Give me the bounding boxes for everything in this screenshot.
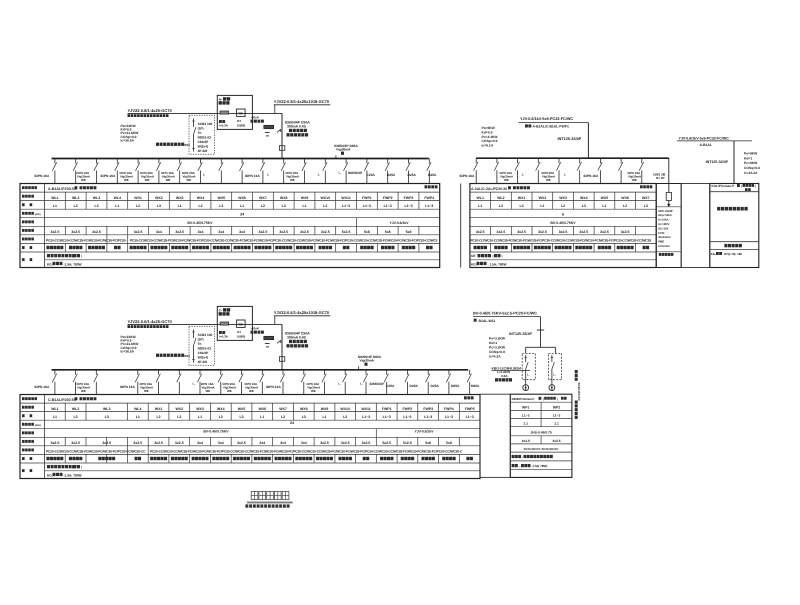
svg-text:WX6: WX6 — [621, 196, 629, 200]
svg-text:Ic=36.5A: Ic=36.5A — [121, 138, 135, 142]
svg-text:3x4: 3x4 — [259, 441, 265, 445]
svg-text:BV-0.45/0.75KV: BV-0.45/0.75KV — [550, 221, 576, 225]
svg-text:C-: C- — [219, 309, 223, 313]
svg-text:1,: 1, — [564, 173, 567, 177]
svg-text:WE: WE — [144, 389, 149, 393]
svg-text:FWP5: FWP5 — [465, 407, 475, 411]
svg-text:INT125-32/4P: INT125-32/4P — [509, 332, 532, 336]
svg-text:L2: L2 — [343, 415, 347, 419]
svg-text::1.5A; 780W: :1.5A; 780W — [64, 262, 82, 266]
svg-text:L1: L1 — [198, 415, 202, 419]
svg-text:3x2.5: 3x2.5 — [102, 441, 111, 445]
svg-text:BV-0.45/0.75KV: BV-0.45/0.75KV — [203, 430, 229, 434]
svg-text:WX8: WX8 — [280, 196, 288, 200]
svg-text:L1~3: L1~3 — [424, 415, 432, 419]
svg-text:WX1: WX1 — [155, 407, 163, 411]
svg-text:FYM:: FYM: — [658, 232, 665, 235]
svg-text:WE: WE — [81, 389, 86, 393]
svg-text:L1: L1 — [478, 204, 482, 208]
svg-text:L1~3: L1~3 — [425, 204, 433, 208]
svg-text:FWP4: FWP4 — [424, 196, 434, 200]
svg-text:A-: A- — [219, 98, 223, 102]
svg-text:L3: L3 — [239, 415, 243, 419]
svg-text:5x2.5: 5x2.5 — [403, 441, 412, 445]
svg-text:WL2: WL2 — [497, 196, 504, 200]
svg-text:L3: L3 — [644, 204, 648, 208]
svg-text:L2: L2 — [499, 204, 503, 208]
svg-text:15(60): 15(60) — [237, 334, 246, 338]
svg-text:WL1: WL1 — [477, 196, 484, 200]
svg-text:NT 4P: NT 4P — [656, 176, 665, 180]
svg-text:BV-0.45/0.75KV-5x2.5-PC20-FC/W: BV-0.45/0.75KV-5x2.5-PC20-FC/WC — [473, 311, 537, 316]
svg-text:L,: L, — [360, 382, 363, 386]
svg-text:3x2.5: 3x2.5 — [320, 441, 329, 445]
svg-text:3x2.5: 3x2.5 — [237, 441, 246, 445]
svg-text:5x2.5: 5x2.5 — [342, 230, 351, 234]
svg-text:D25A: D25A — [431, 384, 440, 388]
svg-text:L1: L1 — [136, 415, 140, 419]
svg-text:3x2.5: 3x2.5 — [51, 230, 60, 234]
svg-text:300mA 0.4S: 300mA 0.4S — [287, 125, 307, 129]
svg-text:): ) — [557, 397, 558, 401]
svg-text:WL1: WL1 — [51, 196, 58, 200]
svg-text:L3: L3 — [282, 204, 286, 208]
svg-text::1.5A; 780W: :1.5A; 780W — [64, 473, 82, 477]
svg-text:Kd=1: Kd=1 — [744, 156, 752, 160]
svg-text:L2: L2 — [281, 415, 285, 419]
svg-text:WX8: WX8 — [300, 407, 308, 411]
svg-text:0.01mm2: 0.01mm2 — [658, 245, 670, 248]
svg-text:WL2: WL2 — [72, 196, 79, 200]
svg-text:1,: 1, — [203, 173, 206, 177]
svg-text:Ic=36.5A: Ic=36.5A — [121, 349, 135, 353]
svg-text:L1: L1 — [53, 415, 57, 419]
svg-text:WP2: WP2 — [553, 405, 560, 409]
svg-text:15(60): 15(60) — [237, 123, 246, 127]
svg-text:Pe=5KW: Pe=5KW — [482, 126, 496, 130]
svg-text:L1: L1 — [53, 204, 57, 208]
svg-text:ID65N/3P: ID65N/3P — [348, 171, 363, 175]
svg-text:): ) — [81, 465, 82, 469]
svg-text:YJV-0.6/1kV-5x6-PC32-FC/WC: YJV-0.6/1kV-5x6-PC32-FC/WC — [679, 136, 730, 140]
svg-text:L2: L2 — [157, 415, 161, 419]
svg-text:3x2.5: 3x2.5 — [300, 230, 309, 234]
svg-text:YJV22-0.8/1-4x25-GC70: YJV22-0.8/1-4x25-GC70 — [128, 108, 173, 113]
svg-text:3x4: 3x4 — [197, 441, 203, 445]
svg-text:WX1: WX1 — [518, 196, 526, 200]
svg-text:YJV22-0.6/1-4x25x1018-GC70: YJV22-0.6/1-4x25x1018-GC70 — [274, 310, 330, 315]
svg-text:L3: L3 — [94, 204, 98, 208]
svg-text:FWP3: FWP3 — [404, 196, 414, 200]
svg-text:24: 24 — [240, 213, 244, 217]
svg-text:A-B1AL/PZ30-54: A-B1AL/PZ30-54 — [48, 187, 76, 191]
svg-text:L1~3: L1~3 — [522, 414, 530, 418]
svg-text:(: ( — [543, 397, 544, 401]
svg-text:L2: L2 — [219, 415, 223, 419]
svg-text:WX9: WX9 — [301, 196, 309, 200]
svg-text:D65A: D65A — [471, 384, 480, 388]
svg-text:L,: L, — [338, 382, 341, 386]
svg-text:COSφ=0.8: COSφ=0.8 — [489, 350, 505, 354]
svg-text:3x2.5: 3x2.5 — [497, 230, 506, 234]
svg-text:3x2.5: 3x2.5 — [133, 441, 142, 445]
svg-text:L2: L2 — [323, 204, 327, 208]
svg-text:L1~3: L1~3 — [553, 414, 561, 418]
svg-text:KG,: KG, — [711, 252, 716, 256]
svg-text:WX3: WX3 — [559, 196, 567, 200]
svg-text:24: 24 — [290, 421, 294, 425]
svg-text:KG,: KG, — [47, 262, 53, 266]
svg-text:1,: 1, — [267, 173, 270, 177]
svg-text:(1P): (1P) — [198, 337, 204, 341]
svg-text:L3: L3 — [74, 415, 78, 419]
svg-text:: 1.5A; 780W: : 1.5A; 780W — [488, 262, 507, 266]
svg-text:3.6A: 3.6A — [501, 374, 508, 378]
svg-text:IDPN 16A: IDPN 16A — [120, 385, 135, 389]
svg-text:PME: PME — [658, 241, 664, 244]
svg-text:INT125-32/4P: INT125-32/4P — [706, 160, 729, 164]
svg-text:IDPN 16A: IDPN 16A — [35, 385, 50, 389]
svg-text:SPD 1St/4P: SPD 1St/4P — [658, 210, 673, 213]
svg-text:IDPN 16A: IDPN 16A — [460, 174, 475, 178]
svg-text:C25A: C25A — [386, 384, 395, 388]
svg-text:1.1: 1.1 — [523, 422, 528, 426]
svg-text:5x6: 5x6 — [364, 230, 370, 234]
svg-text:YJV-0.6/1kV: YJV-0.6/1kV — [414, 430, 434, 434]
svg-text:(KW): (KW) — [35, 424, 41, 427]
svg-text:5x2.5: 5x2.5 — [382, 441, 391, 445]
svg-text::: : — [522, 455, 523, 459]
svg-text:3x4: 3x4 — [218, 230, 224, 234]
svg-text:D65A: D65A — [451, 384, 460, 388]
svg-text:L1~3: L1~3 — [404, 204, 412, 208]
svg-text:Vigi30mA: Vigi30mA — [336, 147, 351, 151]
svg-text:(1P): (1P) — [198, 126, 204, 130]
svg-text:WL3: WL3 — [93, 196, 100, 200]
svg-text:L1~3: L1~3 — [445, 415, 453, 419]
svg-text:FWP1: FWP1 — [362, 196, 372, 200]
svg-text:WE: WE — [166, 178, 171, 182]
svg-text:L2: L2 — [561, 204, 565, 208]
svg-text:WE: WE — [81, 178, 86, 182]
svg-text:L1: L1 — [240, 204, 244, 208]
svg-text:WL2: WL2 — [72, 407, 79, 411]
svg-text:IDPN 16A: IDPN 16A — [245, 174, 260, 178]
svg-text:BV-0.45/0.75KV: BV-0.45/0.75KV — [187, 221, 213, 225]
svg-text:E53: E53 — [185, 354, 191, 358]
svg-text:C63/4P: C63/4P — [198, 351, 210, 355]
svg-text:SC=10X: SC=10X — [658, 227, 668, 230]
svg-text:Uc=400V: Uc=400V — [658, 223, 669, 226]
svg-text:W(3x4): W(3x4) — [198, 355, 208, 359]
svg-text:WE: WE — [227, 389, 232, 393]
svg-text:3x2.5: 3x2.5 — [154, 441, 163, 445]
svg-text:WE: WE — [632, 178, 637, 182]
svg-text:3x2.5: 3x2.5 — [51, 441, 60, 445]
svg-text:L,: L, — [527, 374, 530, 377]
svg-text:D25A: D25A — [428, 173, 437, 177]
svg-text:WX7: WX7 — [279, 407, 287, 411]
svg-text:3x2.5: 3x2.5 — [71, 441, 80, 445]
svg-text:I=0.3A: I=0.3A — [219, 334, 229, 338]
svg-text:INT125-32/4P: INT125-32/4P — [558, 137, 582, 141]
svg-text:JHS-0.45/0.75: JHS-0.45/0.75 — [530, 430, 551, 434]
svg-text:FWP2: FWP2 — [383, 196, 393, 200]
svg-text:WE: WE — [311, 389, 316, 393]
svg-text::1.54( 78W): :1.54( 78W) — [532, 464, 548, 468]
svg-text:L,: L, — [553, 374, 556, 377]
svg-text:L1~3: L1~3 — [466, 415, 474, 419]
svg-text:L1: L1 — [602, 204, 606, 208]
svg-text:A-B1AL: A-B1AL — [700, 143, 712, 147]
svg-text:L1: L1 — [540, 204, 544, 208]
svg-text:YJV22-0.6/1-4x25-GC70: YJV22-0.6/1-4x25-GC70 — [128, 319, 173, 324]
svg-text:D25A: D25A — [408, 173, 417, 177]
svg-text:NDB1-63: NDB1-63 — [198, 346, 212, 350]
svg-text:3x4: 3x4 — [239, 230, 245, 234]
svg-text:(: ( — [72, 254, 73, 258]
svg-text:PC20-CC/WC20-CC/WC25-FC/WC20-F: PC20-CC/WC20-CC/WC25-FC/WC20-FC/WC25-FC/… — [471, 238, 652, 242]
svg-text:Wh: Wh — [238, 323, 243, 327]
svg-text:4P-2M: 4P-2M — [198, 149, 208, 153]
svg-text:L3: L3 — [302, 415, 306, 419]
svg-text:PC20-CC/WC20-CC/WC25-FC/WC20-F: PC20-CC/WC20-CC/WC25-FC/WC20-FC/WC25-FC/… — [46, 238, 126, 242]
svg-text:L1~3: L1~3 — [362, 415, 370, 419]
svg-text:YJV22-0.8/1-4x25x1018-GC70: YJV22-0.8/1-4x25x1018-GC70 — [274, 99, 330, 104]
svg-text:YJV-0.6/1kV: YJV-0.6/1kV — [389, 221, 409, 225]
svg-text:A-B1AL/C-B1AL-FWP1: A-B1AL/C-B1AL-FWP1 — [533, 124, 569, 128]
svg-text:L2: L2 — [198, 204, 202, 208]
svg-text:D25A: D25A — [387, 173, 396, 177]
svg-text:(: ( — [741, 184, 742, 188]
svg-text:WL1: WL1 — [51, 407, 58, 411]
svg-text:1.1: 1.1 — [554, 422, 559, 426]
svg-text:WX4: WX4 — [580, 196, 588, 200]
svg-text:3x2.5: 3x2.5 — [175, 230, 184, 234]
svg-text:WX5: WX5 — [601, 196, 609, 200]
svg-text:IDPN 16A: IDPN 16A — [101, 174, 116, 178]
svg-text:WX5: WX5 — [238, 407, 246, 411]
svg-text:L2: L2 — [261, 204, 265, 208]
svg-text:WX11: WX11 — [361, 407, 370, 411]
svg-text:WE: WE — [206, 389, 211, 393]
svg-text:IDPN 16A: IDPN 16A — [35, 174, 50, 178]
svg-text:3x2.5: 3x2.5 — [476, 230, 485, 234]
svg-text:PC20-CC/WC20-CC/WC25-FC/WC20-F: PC20-CC/WC20-CC/WC25-FC/WC20-FC/WC25-FC/… — [130, 238, 438, 242]
svg-text:(: ( — [493, 254, 494, 258]
svg-text:IDPN 16A: IDPN 16A — [266, 385, 281, 389]
svg-text:1,: 1, — [317, 173, 320, 177]
svg-text:WL4: WL4 — [114, 196, 121, 200]
svg-text:): ) — [502, 254, 503, 258]
svg-text:KG,: KG, — [471, 262, 477, 266]
svg-text:5x8: 5x8 — [385, 230, 391, 234]
svg-text:WE: WE — [504, 178, 509, 182]
svg-text:WX6: WX6 — [259, 407, 267, 411]
svg-text:Pe=8KW: Pe=8KW — [744, 152, 758, 156]
svg-text:WE: WE — [249, 389, 254, 393]
svg-text:WX3: WX3 — [196, 407, 204, 411]
svg-text:3x2.5: 3x2.5 — [538, 230, 547, 234]
svg-text:3x2.5: 3x2.5 — [559, 230, 568, 234]
svg-text:WX7: WX7 — [259, 196, 267, 200]
svg-text:WP1: WP1 — [522, 405, 529, 409]
svg-text:WX10: WX10 — [340, 407, 350, 411]
svg-text:NDB1-63: NDB1-63 — [198, 135, 212, 139]
svg-text:WE: WE — [145, 178, 150, 182]
svg-text:300mA 0.4S: 300mA 0.4S — [287, 336, 307, 340]
svg-text:4x2.5: 4x2.5 — [522, 439, 530, 443]
svg-text:Ic=15.2A: Ic=15.2A — [744, 171, 758, 175]
svg-text:DWB/Prisman-P: DWB/Prisman-P — [512, 397, 535, 401]
svg-text:Th: Th — [198, 131, 202, 135]
svg-text:): ) — [81, 254, 82, 258]
svg-text:L1~3: L1~3 — [363, 204, 371, 208]
svg-text:3x4: 3x4 — [156, 230, 162, 234]
svg-text:L1: L1 — [322, 415, 326, 419]
svg-text:40x4mm2: 40x4mm2 — [658, 236, 671, 239]
svg-text:3x4: 3x4 — [280, 441, 286, 445]
svg-text:3x2.5: 3x2.5 — [92, 230, 101, 234]
svg-text:A-2AL/C-2AL/PZ30-30: A-2AL/C-2AL/PZ30-30 — [471, 187, 507, 191]
svg-text:5x8: 5x8 — [446, 441, 452, 445]
svg-text:SCB2 100: SCB2 100 — [198, 333, 213, 337]
svg-text:Ic=8.1A: Ic=8.1A — [482, 144, 494, 148]
svg-text:KGL/Prisman-P: KGL/Prisman-P — [712, 184, 735, 188]
svg-text:FWP4: FWP4 — [444, 407, 454, 411]
svg-text:WX4: WX4 — [217, 407, 225, 411]
svg-text:C63/4P: C63/4P — [198, 140, 210, 144]
svg-text:3x2.5: 3x2.5 — [341, 441, 350, 445]
svg-text:FWP1: FWP1 — [382, 407, 392, 411]
svg-text:3x4: 3x4 — [198, 230, 204, 234]
svg-text:3x4: 3x4 — [218, 441, 224, 445]
svg-text:W(3x4): W(3x4) — [198, 144, 208, 148]
svg-text:D25A: D25A — [410, 384, 419, 388]
svg-text:-40x4: -40x4 — [251, 115, 259, 119]
svg-text:I=0.3A: I=0.3A — [219, 123, 229, 127]
svg-text:L3: L3 — [582, 204, 586, 208]
svg-text:WX2: WX2 — [176, 407, 184, 411]
svg-text:L,: L, — [339, 171, 342, 175]
svg-text:COSφ=0.9: COSφ=0.9 — [482, 139, 498, 143]
svg-text:Pc=4.4KW: Pc=4.4KW — [482, 135, 499, 139]
svg-text:FWP2: FWP2 — [403, 407, 413, 411]
svg-text:6/F: 6/F — [471, 254, 476, 258]
svg-text:4P-2M: 4P-2M — [198, 360, 208, 364]
svg-text:3x2.5: 3x2.5 — [621, 230, 630, 234]
svg-text:L2: L2 — [623, 204, 627, 208]
svg-text:Pc=3.2KW: Pc=3.2KW — [489, 346, 506, 350]
svg-text:6: 6 — [562, 213, 564, 217]
svg-text:YJV-0.6/1kV-5x6-PC32-FC/WC: YJV-0.6/1kV-5x6-PC32-FC/WC — [520, 117, 573, 121]
svg-text:): ) — [755, 184, 756, 188]
svg-text:L3: L3 — [219, 204, 223, 208]
svg-text:Pe=3.2KW: Pe=3.2KW — [489, 337, 506, 341]
svg-text:Pc=8KW: Pc=8KW — [744, 161, 758, 165]
svg-text:Iimp=15kA: Iimp=15kA — [658, 214, 672, 217]
svg-text::8T(1.74): 18h: :8T(1.74): 18h — [724, 252, 743, 256]
svg-text:WX1: WX1 — [134, 196, 142, 200]
svg-text:3x2.5: 3x2.5 — [134, 230, 143, 234]
svg-text:WX9: WX9 — [321, 407, 329, 411]
svg-text:3x2.5: 3x2.5 — [600, 230, 609, 234]
svg-text:3x2.5: 3x2.5 — [321, 230, 330, 234]
svg-text:SC20-WC/FC: SC20-WC/FC — [577, 383, 581, 402]
svg-text:COSφ=0.6: COSφ=0.6 — [744, 166, 760, 170]
svg-text:WE: WE — [187, 178, 192, 182]
svg-text:5x6: 5x6 — [425, 441, 431, 445]
svg-text:L3: L3 — [177, 415, 181, 419]
svg-text:L1: L1 — [115, 204, 119, 208]
svg-text:3x2.5: 3x2.5 — [517, 230, 526, 234]
svg-text:Ic=10kA: Ic=10kA — [658, 219, 668, 222]
svg-text:WX7: WX7 — [642, 196, 650, 200]
svg-text:3x2.5: 3x2.5 — [579, 230, 588, 234]
svg-text:L3: L3 — [105, 415, 109, 419]
svg-text:C25A: C25A — [367, 173, 376, 177]
svg-text:(KW): (KW) — [35, 213, 41, 216]
svg-text:WX2: WX2 — [155, 196, 163, 200]
svg-text:IDPN 16A: IDPN 16A — [584, 174, 599, 178]
svg-text:L2: L2 — [136, 204, 140, 208]
svg-text:FWP3: FWP3 — [423, 407, 433, 411]
svg-text:4x2.5: 4x2.5 — [552, 439, 560, 443]
svg-text:L1: L1 — [260, 415, 264, 419]
svg-text:WX2: WX2 — [539, 196, 547, 200]
svg-text:WL4: WL4 — [134, 407, 141, 411]
svg-text:C-B1AL/P230-54: C-B1AL/P230-54 — [48, 398, 76, 402]
svg-text:3x2.5: 3x2.5 — [259, 230, 268, 234]
svg-text:L1: L1 — [178, 204, 182, 208]
svg-text:WX4: WX4 — [197, 196, 205, 200]
svg-text:E53: E53 — [185, 143, 191, 147]
svg-text:(: ( — [72, 465, 73, 469]
svg-text:L3: L3 — [520, 204, 524, 208]
svg-text:WL3: WL3 — [103, 407, 110, 411]
svg-text:WE: WE — [124, 178, 129, 182]
svg-text:WX6: WX6 — [238, 196, 246, 200]
svg-text:WX5: WX5 — [218, 196, 226, 200]
svg-text:-40x4: -40x4 — [251, 326, 259, 330]
svg-text:WX11: WX11 — [341, 196, 350, 200]
svg-text:WX3: WX3 — [176, 196, 184, 200]
svg-text:Kd=1: Kd=1 — [489, 341, 497, 345]
svg-text:Wh: Wh — [238, 112, 243, 116]
svg-text:Kd=0.9: Kd=0.9 — [482, 130, 493, 134]
svg-text:3x2.5: 3x2.5 — [71, 230, 80, 234]
svg-text:PC20-CC/WC20-CC/WC25-FC/WC20-F: PC20-CC/WC20-CC/WC25-FC/WC20-FC/WC25-FC/… — [150, 449, 463, 453]
svg-text:3x2.5: 3x2.5 — [279, 230, 288, 234]
svg-text:L1: L1 — [302, 204, 306, 208]
svg-text:L1~3: L1~3 — [383, 415, 391, 419]
svg-text:WE: WE — [546, 178, 551, 182]
svg-text:3x4: 3x4 — [301, 441, 307, 445]
svg-text:3x2.5: 3x2.5 — [362, 441, 371, 445]
svg-text:L1~3: L1~3 — [384, 204, 392, 208]
svg-text:L1~3: L1~3 — [403, 415, 411, 419]
svg-text:L1~3: L1~3 — [342, 204, 350, 208]
svg-text:WX10: WX10 — [321, 196, 331, 200]
svg-text:L2: L2 — [74, 204, 78, 208]
svg-text:5x8: 5x8 — [406, 230, 412, 234]
svg-text:Ic=4.2A: Ic=4.2A — [489, 355, 501, 359]
svg-text:SC20-WC/FC SC20-WC/FC: SC20-WC/FC SC20-WC/FC — [524, 447, 559, 451]
svg-text:PC20-CC/WC20-CC/WC25-FC/WC20-F: PC20-CC/WC20-CC/WC25-FC/WC20-FC/WC25-FC/… — [46, 449, 146, 453]
svg-text:WE: WE — [290, 178, 295, 182]
svg-text:Vigi30mA: Vigi30mA — [360, 359, 375, 363]
svg-text:3x2.5: 3x2.5 — [175, 441, 184, 445]
